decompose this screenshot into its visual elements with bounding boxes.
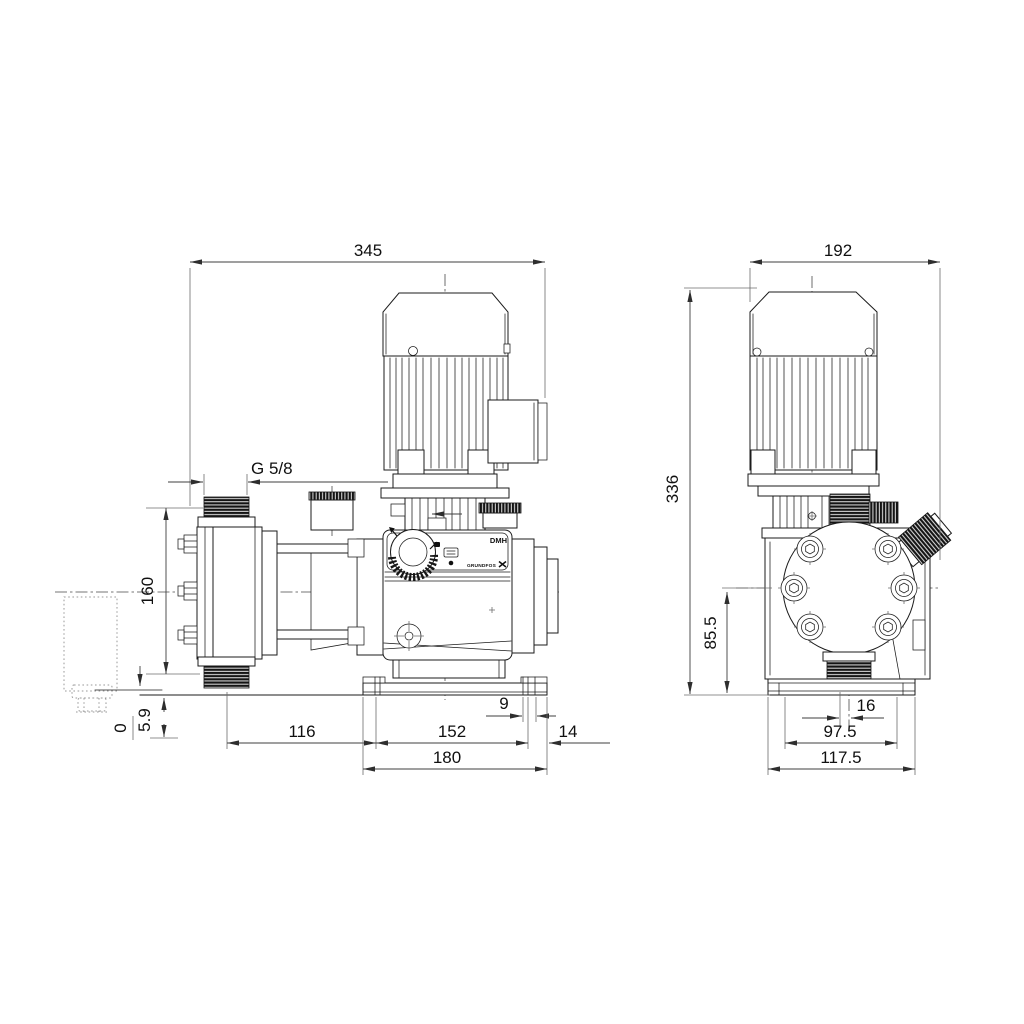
oil-cap-knurl: [479, 503, 521, 513]
dim-label-g58: G 5/8: [251, 459, 293, 478]
motor-flange: [393, 474, 497, 488]
side-bracket: [913, 620, 925, 650]
dim-label-116: 116: [288, 722, 315, 741]
dim-label-16: 16: [857, 696, 876, 715]
pump-dimensional-drawing: DMH GRUNDFOS: [0, 0, 1024, 1024]
terminal-box: [488, 400, 538, 463]
dim-label-336: 336: [663, 475, 682, 503]
vent-plug-body: [311, 500, 353, 530]
brand-logo-text: GRUNDFOS: [467, 563, 497, 569]
suction-valve-flange: [198, 517, 255, 527]
dim-label-9: 9: [499, 694, 508, 713]
model-label: DMH: [490, 536, 507, 545]
base-foot-front: [768, 679, 915, 695]
dim-label-5-9: 5.9: [135, 708, 154, 732]
dim-label-180: 180: [433, 748, 461, 767]
tie-rod-bottom: [277, 630, 357, 639]
lock-icon: [434, 542, 440, 547]
tie-rod-top: [277, 544, 357, 553]
dim-label-345: 345: [354, 241, 382, 260]
dim-label-97-5: 97.5: [823, 722, 856, 741]
discharge-valve-thread: [204, 666, 249, 688]
motor-front: [748, 292, 879, 496]
motor-flange-front: [748, 474, 879, 486]
suction-valve-thread: [204, 497, 249, 517]
dim-label-117-5: 117.5: [820, 748, 861, 767]
lantern-adapter-side: [391, 498, 521, 530]
discharge-valve-flange: [198, 657, 255, 666]
dim-label-192: 192: [824, 241, 852, 260]
cover-screw-left: [753, 348, 761, 356]
vent-plug-front: [869, 502, 898, 523]
dim-label-152: 152: [438, 722, 466, 741]
cover-screw-right: [865, 348, 873, 356]
dim-label-14: 14: [559, 722, 578, 741]
dim-label-85-5: 85.5: [701, 616, 720, 649]
gear-housing-side: DMH GRUNDFOS: [383, 527, 512, 660]
vent-plug-knurl: [309, 492, 355, 500]
dim-label-0: 0: [111, 723, 130, 732]
bottom-valve-flange-front: [823, 652, 875, 661]
dim-label-160: 160: [138, 577, 157, 605]
top-valve-thread-front: [830, 494, 870, 526]
